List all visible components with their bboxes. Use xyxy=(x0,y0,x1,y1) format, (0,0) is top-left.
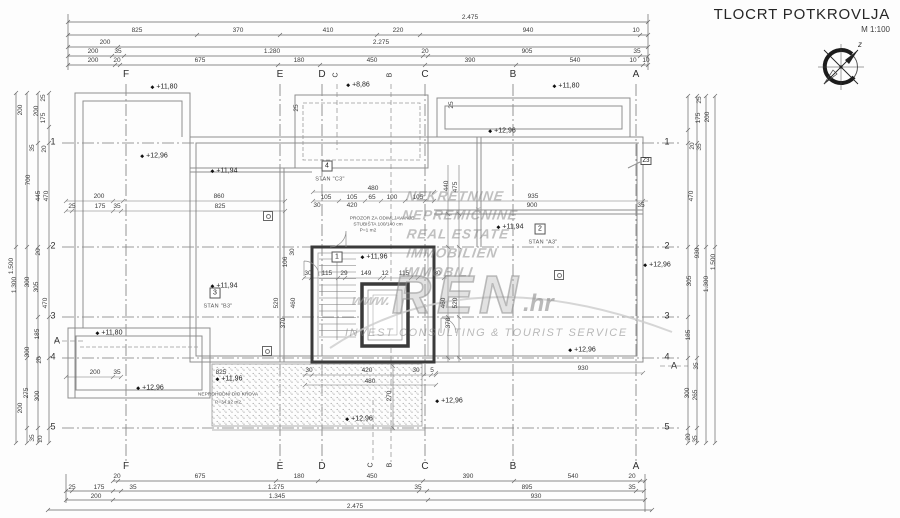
dim-label: 1.275 xyxy=(268,485,284,492)
dim-label: 300 xyxy=(685,388,692,399)
grid-letter: C xyxy=(421,70,428,80)
dim-label: 460 xyxy=(441,298,448,309)
dim-label: 35 xyxy=(633,49,640,56)
room-number: 3 xyxy=(210,288,221,299)
room-number: 1 xyxy=(332,252,343,263)
dim-label: 1.500 xyxy=(711,254,718,270)
dim-label: 30 xyxy=(412,368,419,375)
dim-label: 675 xyxy=(195,474,206,481)
dim-label: 35 xyxy=(114,49,121,56)
dim-label: 20 xyxy=(421,49,428,56)
dim-label: 520 xyxy=(274,298,281,309)
dim-label: 35 xyxy=(129,485,136,492)
elevation-label: +11,80 xyxy=(96,330,123,337)
dim-label: 20 xyxy=(113,474,120,481)
dim-label: 5 xyxy=(430,368,434,375)
label-layer: 2.475825370410220940102002.275200351.280… xyxy=(0,0,900,518)
dim-label: 100 xyxy=(387,195,398,202)
dim-label: 825 xyxy=(215,204,226,211)
compass-north-label: z xyxy=(858,40,862,49)
dim-label: 1.345 xyxy=(269,494,285,501)
dim-label: 300 xyxy=(25,347,32,358)
dim-label: 470 xyxy=(43,298,50,309)
dim-label: 370 xyxy=(233,28,244,35)
dim-label: 2.275 xyxy=(373,40,389,47)
page-title: TLOCRT POTKROVLJA xyxy=(714,6,890,23)
dim-label: 20 xyxy=(36,248,43,255)
dim-label: 175 xyxy=(94,485,105,492)
dim-label: 20 xyxy=(42,145,49,152)
watermark-line: IMMOBILIEN xyxy=(406,246,499,260)
grid-letter: C xyxy=(421,462,428,472)
dim-label: 30 xyxy=(305,368,312,375)
section-marker: A xyxy=(54,337,60,346)
watermark-line: REAL ESTATE xyxy=(406,227,510,241)
dim-label: 470 xyxy=(689,191,696,202)
dim-label: 106 xyxy=(283,257,290,268)
dim-label: 930 xyxy=(578,366,589,373)
dim-label: 200 xyxy=(88,49,99,56)
dim-label: 265 xyxy=(693,390,700,401)
dim-label: 275 xyxy=(24,388,31,399)
room-number: 2 xyxy=(535,224,546,235)
dim-label: 895 xyxy=(522,485,533,492)
dim-label: 700 xyxy=(26,175,33,186)
dim-label: 30 xyxy=(313,203,320,210)
dim-label: 29 xyxy=(340,271,347,278)
dim-label: 905 xyxy=(522,49,533,56)
dim-label: 105 xyxy=(321,195,332,202)
dim-label: 480 xyxy=(365,379,376,386)
grid-letter: A xyxy=(633,462,640,472)
dim-label: 185 xyxy=(686,330,693,341)
dim-label: 180 xyxy=(294,58,305,65)
dim-label: 410 xyxy=(323,28,334,35)
dim-label: 930 xyxy=(695,248,702,259)
dim-label: 2.475 xyxy=(462,15,478,22)
dim-label: 200 xyxy=(18,403,25,414)
elevation-label: +12,96 xyxy=(140,153,167,160)
dim-label: 30 xyxy=(304,271,311,278)
dim-label: 305 xyxy=(687,276,694,287)
dim-label: 220 xyxy=(393,28,404,35)
dim-label: 935 xyxy=(528,194,539,201)
dim-label: 900 xyxy=(527,203,538,210)
grid-letter: E xyxy=(277,462,284,472)
roof-note: P=34,92 m2 xyxy=(215,402,241,407)
grid-number: 2 xyxy=(50,242,55,251)
room-name: STAN "B3" xyxy=(203,304,232,310)
dim-label: 25 xyxy=(68,204,75,211)
grid-number: 5 xyxy=(50,423,55,432)
dim-label: 20 xyxy=(37,356,44,363)
dim-label: 1.500 xyxy=(9,258,16,274)
dim-label: 390 xyxy=(463,474,474,481)
grid-letter: B xyxy=(510,462,517,472)
dim-label: 35 xyxy=(694,362,701,369)
dim-label: 300 xyxy=(35,391,42,402)
grid-number: 1 xyxy=(664,138,669,147)
dim-label: 35 xyxy=(30,434,37,441)
dim-label: 1.280 xyxy=(264,49,280,56)
dim-label: 675 xyxy=(195,58,206,65)
grid-letter: B xyxy=(510,70,517,80)
dim-label: 35 xyxy=(30,144,37,151)
dim-label: 445 xyxy=(36,191,43,202)
dim-label: 460 xyxy=(291,298,298,309)
dim-label: 200 xyxy=(18,105,25,116)
dim-label: 940 xyxy=(523,28,534,35)
watermark-line: NEPREMIČNINE xyxy=(401,208,518,222)
grid-letter: D xyxy=(318,462,325,472)
dim-label: 175 xyxy=(696,113,703,124)
dim-label: 300 xyxy=(25,277,32,288)
dim-label: 390 xyxy=(465,58,476,65)
dim-label: 25 xyxy=(68,485,75,492)
grid-letter: E xyxy=(277,70,284,80)
dim-label: 105 xyxy=(347,195,358,202)
roof-note: NEPROHODNI DIO KROVA xyxy=(198,394,258,399)
floor-plan-page: { "title_block": {"title": "TLOCRT POTKR… xyxy=(0,0,900,518)
dim-label: 200 xyxy=(88,58,99,65)
title-block: TLOCRT POTKROVLJA M 1:100 xyxy=(714,6,890,34)
elevation-label: +12,96 xyxy=(568,347,595,354)
dim-label: 370 xyxy=(281,318,288,329)
dim-label: 35 xyxy=(414,485,421,492)
elevation-label: +12,96 xyxy=(488,128,515,135)
room-name: STAN "C3" xyxy=(315,177,344,183)
grid-letter: F xyxy=(123,70,129,80)
dim-label: 420 xyxy=(347,203,358,210)
dim-label: 35 xyxy=(628,485,635,492)
dim-label: 1.300 xyxy=(704,276,711,292)
dim-label: 540 xyxy=(570,58,581,65)
dim-label: 20 xyxy=(38,435,45,442)
grid-letter: A xyxy=(633,70,640,80)
dim-label: 2.475 xyxy=(347,504,363,511)
dim-label: 825 xyxy=(132,28,143,35)
dim-label: 860 xyxy=(214,194,225,201)
grid-number: 4 xyxy=(664,353,669,362)
dim-label: 35 xyxy=(113,204,120,211)
elevation-label: +11,80 xyxy=(553,83,580,90)
room-number: 4 xyxy=(322,161,333,172)
dim-label: 200 xyxy=(100,40,111,47)
grid-letter: C xyxy=(368,462,375,467)
dim-label: 35 xyxy=(637,203,644,210)
dim-label: 175 xyxy=(41,113,48,124)
dim-label: 180 xyxy=(294,474,305,481)
grid-letter: B xyxy=(387,73,394,78)
dim-label: 35 xyxy=(697,143,704,150)
elevation-label: +11,96 xyxy=(216,376,243,383)
dim-label: 10 xyxy=(642,58,649,65)
grid-letter: C xyxy=(333,72,340,77)
dim-label: 35 xyxy=(113,370,120,377)
dim-label: 35 xyxy=(693,435,700,442)
wall-tag: Z3 xyxy=(640,157,651,165)
dim-label: 25 xyxy=(294,104,301,111)
elevation-label: +8,86 xyxy=(346,82,370,89)
dim-label: 450 xyxy=(367,58,378,65)
dim-label: 420 xyxy=(362,368,373,375)
grid-letter: B xyxy=(387,463,394,468)
dim-label: 115 xyxy=(322,271,332,278)
grid-letter: F xyxy=(123,462,129,472)
dim-label: 200 xyxy=(705,112,712,123)
dim-label: 175 xyxy=(95,204,106,211)
dim-label: 200 xyxy=(94,194,105,201)
dim-label: 270 xyxy=(387,391,394,402)
watermark-line: IMMOBILI xyxy=(402,265,474,279)
dim-label: 1.300 xyxy=(12,277,19,293)
roof-drain-icon xyxy=(263,211,273,221)
dim-label: 450 xyxy=(367,474,378,481)
dim-label: 305 xyxy=(34,282,41,293)
elevation-label: +12,96 xyxy=(136,385,163,392)
watermark-line: NEKRETNINE xyxy=(405,189,505,203)
dim-label: 30 xyxy=(290,248,297,255)
dim-label: 540 xyxy=(568,474,579,481)
dim-label: 185 xyxy=(35,329,42,340)
section-marker: A xyxy=(671,362,677,371)
elevation-label: +12,96 xyxy=(435,398,462,405)
drawing-scale: M 1:100 xyxy=(714,25,890,34)
grid-number: 4 xyxy=(50,353,55,362)
dim-label: 470 xyxy=(44,191,51,202)
dim-label: 930 xyxy=(531,494,542,501)
dim-label: 20 xyxy=(628,474,635,481)
roof-drain-icon xyxy=(554,270,564,280)
dim-label: 370 xyxy=(446,318,453,329)
roof-drain-icon xyxy=(262,346,272,356)
grid-number: 2 xyxy=(664,242,669,251)
dim-label: 480 xyxy=(368,186,379,193)
stair-window-note: P=1 m2 xyxy=(360,230,377,235)
dim-label: 520 xyxy=(453,298,460,309)
grid-number: 3 xyxy=(664,312,669,321)
elevation-label: +11,96 xyxy=(361,254,388,261)
elevation-label: +11,80 xyxy=(151,84,178,91)
dim-label: 25 xyxy=(697,96,704,103)
grid-number: 1 xyxy=(50,138,55,147)
dim-label: 10 xyxy=(629,58,636,65)
dim-label: 25 xyxy=(41,94,48,101)
grid-number: 5 xyxy=(664,423,669,432)
dim-label: 10 xyxy=(632,28,639,35)
grid-letter: D xyxy=(318,70,325,80)
dim-label: 200 xyxy=(90,370,101,377)
elevation-label: +12,96 xyxy=(643,262,670,269)
dim-label: 20 xyxy=(113,58,120,65)
dim-label: 200 xyxy=(91,494,102,501)
dim-label: 149 xyxy=(361,271,372,278)
dim-label: 25 xyxy=(449,101,456,108)
elevation-label: +12,96 xyxy=(345,416,372,423)
grid-number: 3 xyxy=(50,312,55,321)
dim-label: 65 xyxy=(368,195,375,202)
room-name: STAN "A3" xyxy=(528,240,557,246)
dim-label: 12 xyxy=(381,271,388,278)
elevation-label: +11,94 xyxy=(211,168,238,175)
